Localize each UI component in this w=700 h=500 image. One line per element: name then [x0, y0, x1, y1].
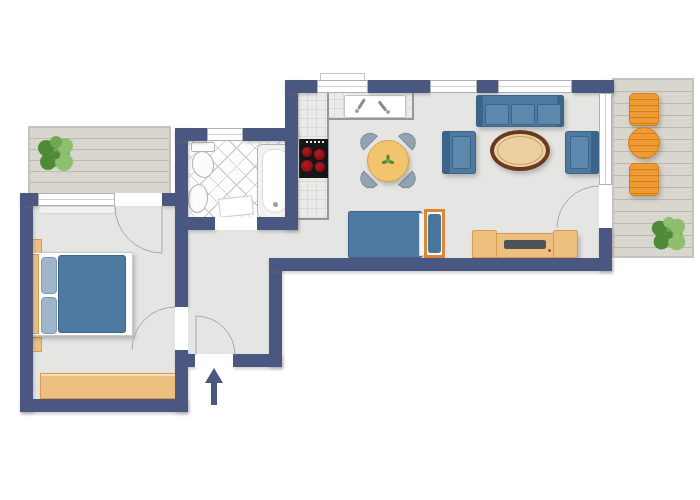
bathroom-door-leaf — [218, 195, 254, 217]
stove-burner-1 — [302, 147, 312, 157]
hall-floor — [182, 223, 282, 361]
sink-drain-left — [355, 109, 359, 113]
entrance-door-gap — [195, 354, 233, 367]
wall-hall-bottom-left — [188, 354, 195, 367]
plant-icon-left-balcony — [32, 131, 80, 179]
armchair-left-back — [442, 131, 450, 174]
wall-bedroom-top-left — [20, 193, 38, 206]
tv-icon — [504, 240, 546, 249]
wall-living-right-bottom — [599, 228, 612, 271]
bathroom-door-gap — [215, 217, 257, 230]
wall-bedroom-left — [20, 193, 33, 412]
sofa-armrest-left — [476, 95, 483, 127]
wall-living-left — [285, 80, 298, 230]
armchair-right-back — [591, 131, 599, 174]
living-balcony-window — [599, 93, 612, 185]
daybed-duvet — [348, 211, 422, 258]
bed-duvet — [58, 255, 126, 333]
bathroom-window — [207, 128, 243, 141]
bed-pillow-bottom — [41, 297, 57, 334]
wall-living-bottom — [269, 258, 612, 271]
wall-bathroom-bottom-left — [188, 217, 215, 230]
living-window-1 — [430, 80, 477, 93]
sink-drain-right — [386, 110, 390, 114]
floor-plan — [0, 0, 700, 500]
wall-living-top-1 — [285, 80, 317, 93]
sofa-cushion-3 — [537, 104, 561, 125]
entry-arrow-icon — [205, 368, 223, 405]
living-window-2 — [498, 80, 572, 93]
wall-bedroom-hall-upper — [175, 193, 188, 307]
wall-living-right-top — [599, 80, 612, 93]
balcony-round-table — [628, 127, 660, 159]
bedroom-hall-door-gap — [175, 307, 188, 350]
kitchen-sink — [344, 95, 406, 118]
wall-bedroom-bottom — [20, 399, 188, 412]
sofa-cushion-1 — [485, 104, 509, 125]
wall-bathroom-bottom-right — [257, 217, 298, 230]
stove-burner-2 — [314, 149, 325, 160]
daybed-pillow — [428, 214, 441, 253]
plant-icon-right-balcony — [646, 212, 692, 258]
sideboard-block-left — [472, 230, 497, 258]
bathtub-drain — [273, 202, 278, 207]
plant-sprig-icon — [381, 154, 395, 168]
living-balcony-door-gap — [599, 185, 612, 228]
bedroom-balcony-door-gap — [115, 193, 162, 206]
balcony-chair-top — [629, 93, 659, 126]
wall-living-top-2 — [368, 80, 430, 93]
wall-living-top-3 — [477, 80, 498, 93]
tv-indicator-dot — [548, 249, 551, 252]
bed-pillow-top — [41, 257, 57, 294]
stove-burner-4 — [315, 162, 325, 172]
bedroom-window-sill — [38, 206, 115, 214]
wall-bedroom-hall-lower — [175, 350, 188, 412]
wardrobe — [40, 373, 177, 399]
bedroom-window — [38, 193, 115, 206]
armchair-left-cushion — [452, 136, 471, 169]
wall-bathroom-top-left — [175, 128, 207, 141]
stove-controls — [306, 141, 324, 143]
armchair-right-cushion — [570, 136, 589, 169]
sideboard-block-right — [553, 230, 578, 258]
coffee-table-inner-ring — [497, 136, 543, 165]
kitchen-window — [317, 80, 368, 93]
balcony-chair-bottom — [629, 163, 659, 196]
sofa-cushion-2 — [511, 104, 535, 125]
stove — [299, 139, 328, 178]
stove-burner-3 — [301, 160, 313, 172]
wall-hall-right — [269, 258, 282, 367]
